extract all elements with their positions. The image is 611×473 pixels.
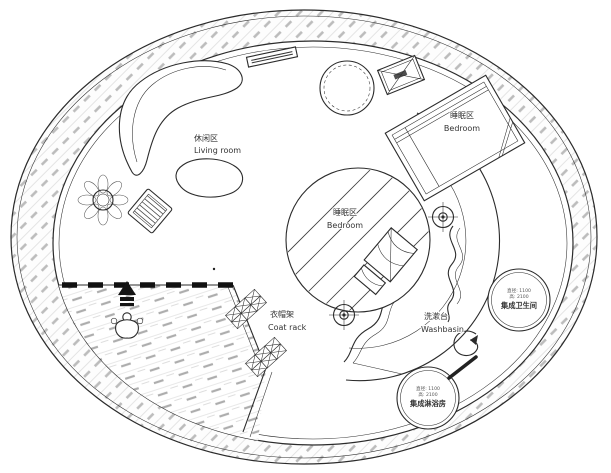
bathroom-spec-height: 高: 2100 [509,293,528,300]
plan-dot [213,268,215,270]
bedroom-top-label-zh: 睡眠区 [450,111,474,120]
coat-rack-label-zh: 衣帽架 [270,309,294,319]
bedroom-center-label-zh: 睡眠区 [333,208,357,217]
living-room-label-zh: 休闲区 [194,133,218,143]
floor-plan-drawing: 直径: 1100 高: 2100 集成卫生间 直径: 1100 高: 2100 … [0,0,611,473]
bedroom-top-label-en: Bedroom [444,124,480,133]
bathroom-label: 集成卫生间 [500,301,537,310]
shower-label: 集成淋浴房 [409,399,446,408]
shower-spec-diameter: 直径: 1100 [416,385,440,392]
washbasin-label-zh: 洗漱台 [424,311,448,321]
shower-spec-height: 高: 2100 [418,391,437,398]
washbasin-label-en: Washbasin [421,325,464,334]
coffee-table [176,159,243,197]
bedroom-center-label-en: Bedroom [327,221,363,230]
floor-plan-canvas: 直径: 1100 高: 2100 集成卫生间 直径: 1100 高: 2100 … [0,0,611,473]
coat-rack-label-en: Coat rack [268,323,307,332]
bathroom-spec-diameter: 直径: 1100 [507,287,531,294]
bathroom-pod: 直径: 1100 高: 2100 集成卫生间 [488,269,550,331]
living-room-label-en: Living room [194,146,241,155]
